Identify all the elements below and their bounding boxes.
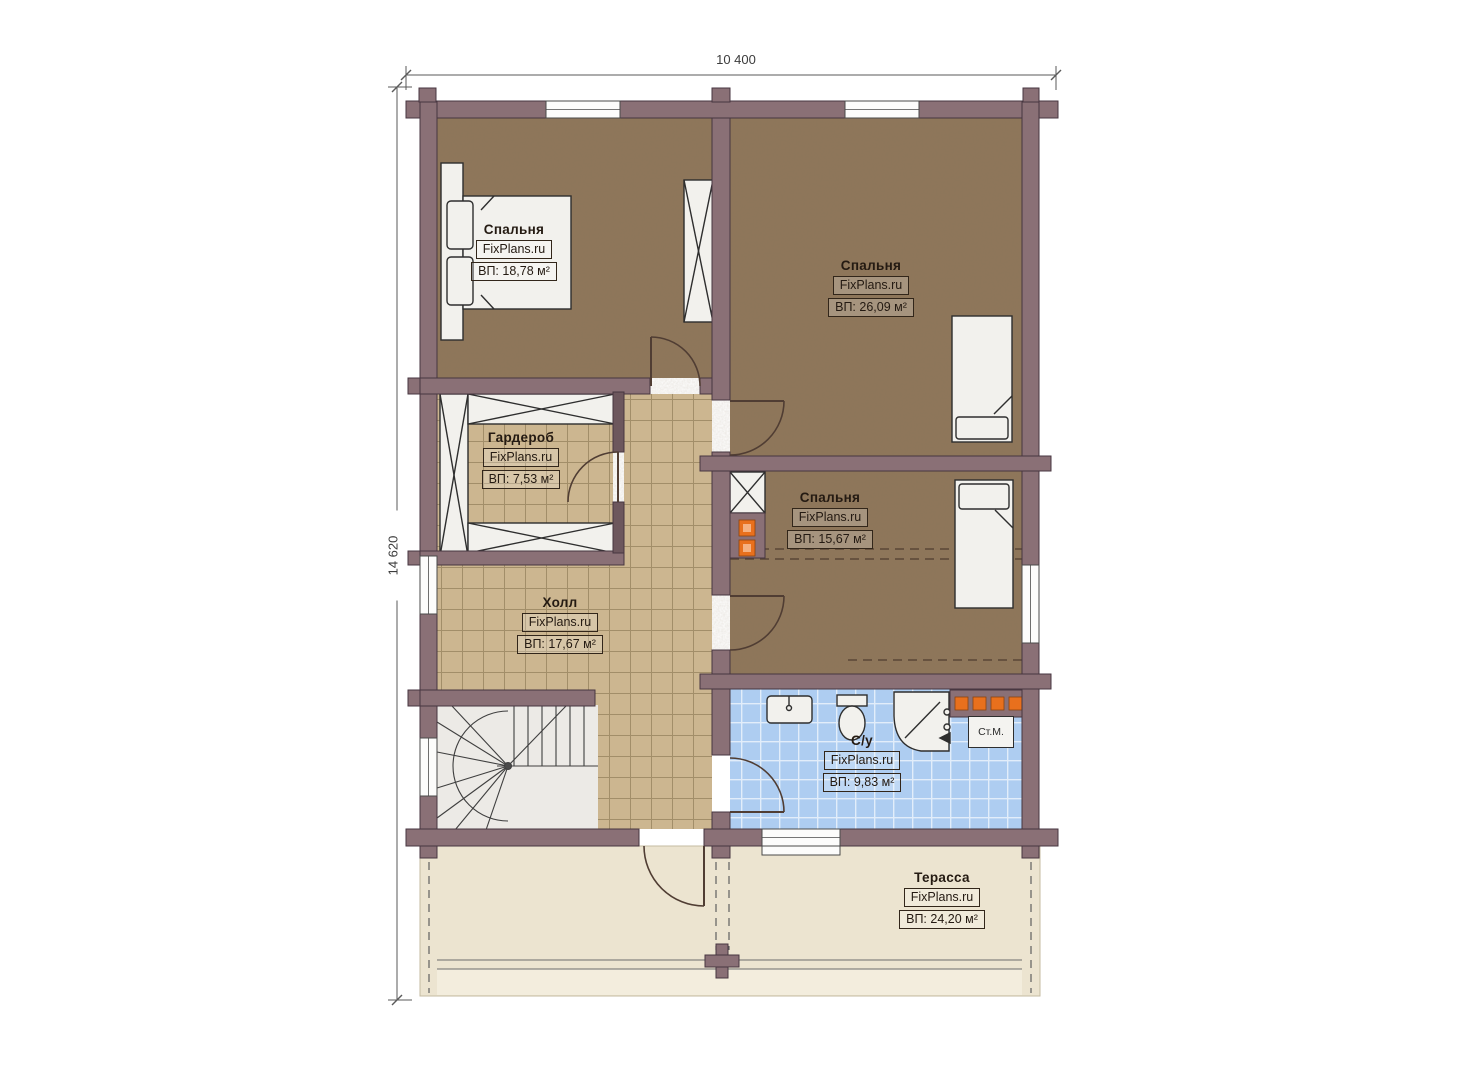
window-stairs-west [420, 738, 437, 796]
brand-box: FixPlans.ru [476, 240, 553, 259]
stair-room-floor [437, 705, 598, 829]
room-label-bedroom-3: Спальня FixPlans.ru ВП: 15,67 м² [755, 490, 905, 549]
room-name: Терасса [914, 870, 970, 885]
partition-wardrobe [613, 502, 624, 553]
log-end [408, 690, 420, 706]
room-name: С/у [851, 733, 873, 748]
brand-box: FixPlans.ru [483, 448, 560, 467]
area-box: ВП: 15,67 м² [787, 530, 873, 549]
wall-bedroom3-bathroom [700, 674, 1051, 689]
partition-wardrobe [613, 392, 624, 452]
log-end [408, 378, 420, 394]
brand-box: FixPlans.ru [833, 276, 910, 295]
window-bedroom1-north [546, 101, 620, 118]
wall-bedroom2-bedroom3 [700, 456, 1051, 471]
brand-box: FixPlans.ru [904, 888, 981, 907]
wall-center [712, 118, 730, 400]
wall-exterior-right [1022, 101, 1039, 858]
wall-center [712, 650, 730, 755]
room-label-hall: Холл FixPlans.ru ВП: 17,67 м² [485, 595, 635, 654]
area-box: ВП: 7,53 м² [482, 470, 561, 489]
stair-newel-post [505, 763, 512, 770]
room-name: Спальня [484, 222, 544, 237]
room-label-bedroom-1: Спальня FixPlans.ru ВП: 18,78 м² [439, 222, 589, 281]
log-end [419, 88, 436, 102]
brand-box: FixPlans.ru [522, 613, 599, 632]
wall-bedroom1-south [700, 378, 712, 394]
brand-box: FixPlans.ru [792, 508, 869, 527]
log-end [712, 88, 730, 102]
single-bed [955, 480, 1013, 608]
room-label-bathroom: С/у FixPlans.ru ВП: 9,83 м² [787, 733, 937, 792]
dimension-height: 14 620 [386, 511, 401, 601]
washing-machine: Ст.М. [968, 716, 1014, 748]
dimension-width: 10 400 [691, 52, 781, 67]
area-box: ВП: 9,83 м² [823, 773, 902, 792]
wall-exterior-bottom [840, 829, 1058, 846]
wall-stairs-north [420, 690, 595, 706]
room-name: Спальня [800, 490, 860, 505]
log-end [712, 846, 730, 858]
area-box: ВП: 17,67 м² [517, 635, 603, 654]
closet-cabinet-top [468, 394, 615, 424]
wall-exterior-bottom [704, 829, 762, 846]
area-box: ВП: 26,09 м² [828, 298, 914, 317]
wall-center [712, 452, 730, 595]
wardrobe-cabinet [684, 180, 713, 322]
floor-plan-drawing [0, 0, 1473, 1080]
window-bedroom2-north [845, 101, 919, 118]
log-end [408, 551, 420, 565]
window-bedroom3-east [1022, 565, 1039, 643]
wall-exterior-top [406, 101, 1058, 118]
room-name: Спальня [841, 258, 901, 273]
single-bed [952, 316, 1012, 442]
area-box: ВП: 24,20 м² [899, 910, 985, 929]
terrace-step-strip [437, 969, 1022, 995]
room-label-terrace: Терасса FixPlans.ru ВП: 24,20 м² [867, 870, 1017, 929]
floor-plan: 10 400 14 620 Спальня FixPlans.ru ВП: 18… [0, 0, 1473, 1080]
area-box: ВП: 18,78 м² [471, 262, 557, 281]
wall-wardrobe-south [420, 551, 624, 565]
wall-center [712, 812, 730, 829]
room-label-bedroom-2: Спальня FixPlans.ru ВП: 26,09 м² [796, 258, 946, 317]
window-bathroom-south [762, 829, 840, 855]
log-end [1023, 88, 1039, 102]
sink [767, 696, 812, 723]
room-label-wardrobe: Гардероб FixPlans.ru ВП: 7,53 м² [446, 430, 596, 489]
room-name: Гардероб [488, 430, 554, 445]
room-name: Холл [542, 595, 577, 610]
closet-cabinet-bottom [468, 523, 615, 553]
terrace-post [705, 955, 739, 967]
window-hall-west [420, 556, 437, 614]
wall-exterior-bottom [406, 829, 639, 846]
brand-box: FixPlans.ru [824, 751, 901, 770]
